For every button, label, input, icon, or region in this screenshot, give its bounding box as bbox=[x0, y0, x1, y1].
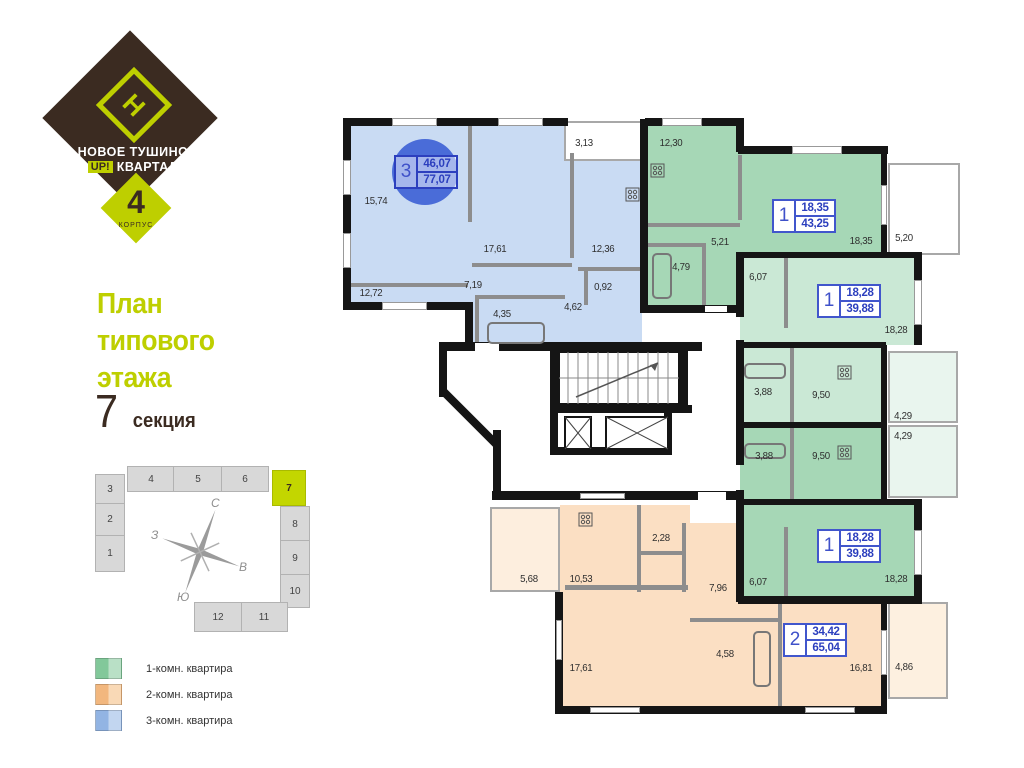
apartment-divider-wall bbox=[738, 422, 886, 428]
section-number: 7 bbox=[95, 388, 118, 434]
room-area-label: 16,81 bbox=[850, 662, 873, 674]
room-area-label: 5,21 bbox=[711, 236, 729, 248]
section-word: секция bbox=[132, 410, 195, 433]
sitemap-section-8[interactable]: 8 bbox=[280, 506, 310, 542]
apartment-living-area: 18,28 bbox=[841, 531, 879, 547]
floor-plan: 15,74 12,72 17,61 7,19 12,36 0,92 4,62 4… bbox=[340, 115, 980, 720]
room-area-label: 3,13 bbox=[575, 137, 593, 149]
core-wall bbox=[493, 430, 501, 498]
sitemap-section-5[interactable]: 5 bbox=[173, 466, 223, 492]
stove-icon bbox=[578, 512, 593, 527]
room-area-label: 7,96 bbox=[709, 582, 727, 594]
window bbox=[881, 185, 887, 225]
partition-wall bbox=[570, 153, 574, 258]
apartment-total-area: 65,04 bbox=[807, 641, 845, 655]
room-area-label: 4,79 bbox=[672, 261, 690, 273]
apartment-divider-wall bbox=[738, 252, 922, 258]
partition-wall bbox=[643, 243, 703, 247]
room-area-label: 0,92 bbox=[594, 281, 612, 293]
legend-item-2room: 2-комн. квартира bbox=[95, 684, 233, 705]
legend-swatch-3room bbox=[95, 710, 122, 731]
partition-wall bbox=[565, 585, 688, 590]
legend-item-1room: 1-комн. квартира bbox=[95, 658, 233, 679]
window bbox=[881, 630, 887, 675]
room-area-label: 17,61 bbox=[484, 243, 507, 255]
apartment-total-area: 77,07 bbox=[418, 173, 456, 187]
brand-name-line1: НОВОЕ ТУШИНО bbox=[48, 145, 218, 159]
brand-name-line2: КВАРТАЛ bbox=[117, 160, 179, 174]
compass-rose-icon: С В Ю З bbox=[145, 495, 257, 607]
window bbox=[343, 160, 351, 195]
partition-wall bbox=[468, 122, 472, 222]
room-area-label: 4,58 bbox=[716, 648, 734, 660]
room-area-label: 12,30 bbox=[660, 137, 683, 149]
partition-wall bbox=[790, 428, 794, 502]
window bbox=[392, 118, 437, 126]
window bbox=[914, 280, 922, 325]
door-opening bbox=[475, 343, 499, 351]
elevators-icon bbox=[562, 411, 678, 455]
partition-wall bbox=[584, 271, 588, 305]
apartment-rooms-count: 2 bbox=[785, 625, 807, 655]
window bbox=[590, 707, 640, 713]
partition-wall bbox=[702, 243, 706, 311]
corridor-wall bbox=[736, 490, 744, 602]
apartment-total-area: 39,88 bbox=[841, 302, 879, 316]
apartment-1room-a-label[interactable]: 1 18,35 43,25 bbox=[772, 199, 836, 233]
legend-item-3room: 3-комн. квартира bbox=[95, 710, 233, 731]
bathtub-icon bbox=[744, 363, 786, 379]
corridor-wall bbox=[736, 340, 744, 465]
apartment-rooms-count: 3 bbox=[396, 157, 418, 187]
partition-wall bbox=[778, 604, 782, 709]
window bbox=[792, 146, 842, 154]
apartment-2room-region[interactable] bbox=[560, 592, 690, 712]
page: { "logo": { "mark": "Н", "name_line1": "… bbox=[0, 0, 1024, 768]
room-area-label: 6,07 bbox=[749, 271, 767, 283]
outer-wall bbox=[343, 118, 351, 310]
partition-wall bbox=[682, 523, 686, 592]
window bbox=[805, 707, 855, 713]
stove-icon bbox=[650, 163, 665, 178]
section-title: 7 секция bbox=[95, 388, 198, 434]
stove-icon bbox=[837, 445, 852, 460]
apartment-1room-c-region[interactable] bbox=[740, 425, 885, 502]
legend-label-2room: 2-комн. квартира bbox=[146, 689, 233, 701]
apartment-divider-wall bbox=[738, 499, 922, 505]
page-title-line2: типового bbox=[97, 323, 215, 360]
building-caption: КОРПУС bbox=[96, 222, 176, 229]
window bbox=[580, 493, 625, 499]
legend-swatch-1room bbox=[95, 658, 122, 679]
window bbox=[556, 620, 562, 660]
compass-west-label: З bbox=[151, 528, 159, 542]
stair-wall bbox=[550, 351, 558, 455]
partition-wall bbox=[472, 263, 572, 267]
room-area-label: 3,88 bbox=[754, 386, 772, 398]
apartment-rooms-count: 1 bbox=[819, 531, 841, 561]
apartment-total-area: 43,25 bbox=[796, 217, 834, 231]
sitemap-section-6[interactable]: 6 bbox=[221, 466, 269, 492]
apartment-living-area: 46,07 bbox=[418, 157, 456, 173]
partition-wall bbox=[784, 258, 788, 328]
page-title-line1: План bbox=[97, 286, 215, 323]
brand-mark-letter: Н bbox=[118, 89, 150, 121]
room-area-label: 5,20 bbox=[895, 232, 913, 244]
page-title: План типового этажа bbox=[97, 286, 215, 397]
stove-icon bbox=[625, 187, 640, 202]
bathtub-icon bbox=[487, 322, 545, 344]
corridor-wall bbox=[736, 252, 744, 317]
room-area-label: 4,29 bbox=[894, 430, 912, 442]
sitemap-section-7-highlighted[interactable]: 7 bbox=[272, 470, 306, 506]
compass-south-label: Ю bbox=[177, 590, 189, 604]
window bbox=[662, 118, 702, 126]
up-badge: UP! bbox=[88, 161, 113, 173]
apartment-divider-wall bbox=[738, 342, 886, 348]
sitemap-section-4[interactable]: 4 bbox=[127, 466, 175, 492]
balcony-2room-right bbox=[888, 602, 948, 699]
apartment-rooms-count: 1 bbox=[774, 201, 796, 231]
legend-label-3room: 3-комн. квартира bbox=[146, 715, 233, 727]
apartment-living-area: 34,42 bbox=[807, 625, 845, 641]
window bbox=[914, 530, 922, 575]
room-area-label: 18,35 bbox=[850, 235, 873, 247]
room-area-label: 2,28 bbox=[652, 532, 670, 544]
room-area-label: 18,28 bbox=[885, 573, 908, 585]
room-area-label: 18,28 bbox=[885, 324, 908, 336]
compass-east-label: В bbox=[239, 560, 247, 574]
brand-name-row2: UP! КВАРТАЛ bbox=[48, 160, 218, 174]
room-area-label: 4,62 bbox=[564, 301, 582, 313]
core-diagonal-wall bbox=[440, 388, 499, 447]
room-area-label: 12,72 bbox=[360, 287, 383, 299]
partition-wall bbox=[790, 348, 794, 422]
door-opening bbox=[705, 306, 727, 312]
stove-icon bbox=[837, 365, 852, 380]
sitemap-section-2[interactable]: 2 bbox=[95, 502, 125, 536]
partition-wall bbox=[643, 223, 740, 227]
window bbox=[343, 233, 351, 268]
partition-wall bbox=[690, 618, 780, 622]
room-area-label: 7,19 bbox=[464, 279, 482, 291]
room-area-label: 9,50 bbox=[812, 450, 830, 462]
bathtub-icon bbox=[652, 253, 672, 299]
bathtub-icon bbox=[753, 631, 771, 687]
room-area-label: 17,61 bbox=[570, 662, 593, 674]
outer-wall bbox=[881, 345, 887, 502]
legend-label-1room: 1-комн. квартира bbox=[146, 663, 233, 675]
apartment-3room-label[interactable]: 3 46,07 77,07 bbox=[394, 155, 458, 189]
room-area-label: 9,50 bbox=[812, 389, 830, 401]
apartment-1room-b-label[interactable]: 1 18,28 39,88 bbox=[817, 284, 881, 318]
room-area-label: 4,35 bbox=[493, 308, 511, 320]
partition-wall bbox=[738, 155, 742, 220]
partition-wall bbox=[637, 551, 682, 555]
room-area-label: 4,29 bbox=[894, 410, 912, 422]
room-area-label: 4,86 bbox=[895, 661, 913, 673]
apartment-living-area: 18,35 bbox=[796, 201, 834, 217]
apartment-total-area: 39,88 bbox=[841, 547, 879, 561]
window bbox=[382, 302, 427, 310]
partition-wall bbox=[784, 527, 788, 597]
window bbox=[498, 118, 543, 126]
room-area-label: 10,53 bbox=[570, 573, 593, 585]
sitemap-section-1[interactable]: 1 bbox=[95, 534, 125, 572]
building-number: 4 bbox=[96, 186, 176, 218]
apartment-1room-c-label[interactable]: 1 18,28 39,88 bbox=[817, 529, 881, 563]
apartment-divider-wall bbox=[640, 119, 648, 309]
apartment-rooms-count: 1 bbox=[819, 286, 841, 316]
door-opening bbox=[698, 492, 726, 500]
apartment-2room-label[interactable]: 2 34,42 65,04 bbox=[783, 623, 847, 657]
room-area-label: 3,88 bbox=[755, 450, 773, 462]
legend-swatch-2room bbox=[95, 684, 122, 705]
compass-north-label: С bbox=[211, 496, 220, 510]
partition-wall bbox=[475, 295, 565, 299]
room-area-label: 12,36 bbox=[592, 243, 615, 255]
sitemap-section-3[interactable]: 3 bbox=[95, 474, 125, 504]
apartment-divider-wall bbox=[738, 596, 922, 604]
room-area-label: 6,07 bbox=[749, 576, 767, 588]
partition-wall bbox=[637, 505, 641, 592]
staircase-icon bbox=[558, 351, 680, 405]
apartment-1room-b-region[interactable] bbox=[740, 345, 885, 425]
apartment-living-area: 18,28 bbox=[841, 286, 879, 302]
room-area-label: 5,68 bbox=[520, 573, 538, 585]
room-area-label: 15,74 bbox=[365, 195, 388, 207]
sitemap-section-9[interactable]: 9 bbox=[280, 540, 310, 576]
